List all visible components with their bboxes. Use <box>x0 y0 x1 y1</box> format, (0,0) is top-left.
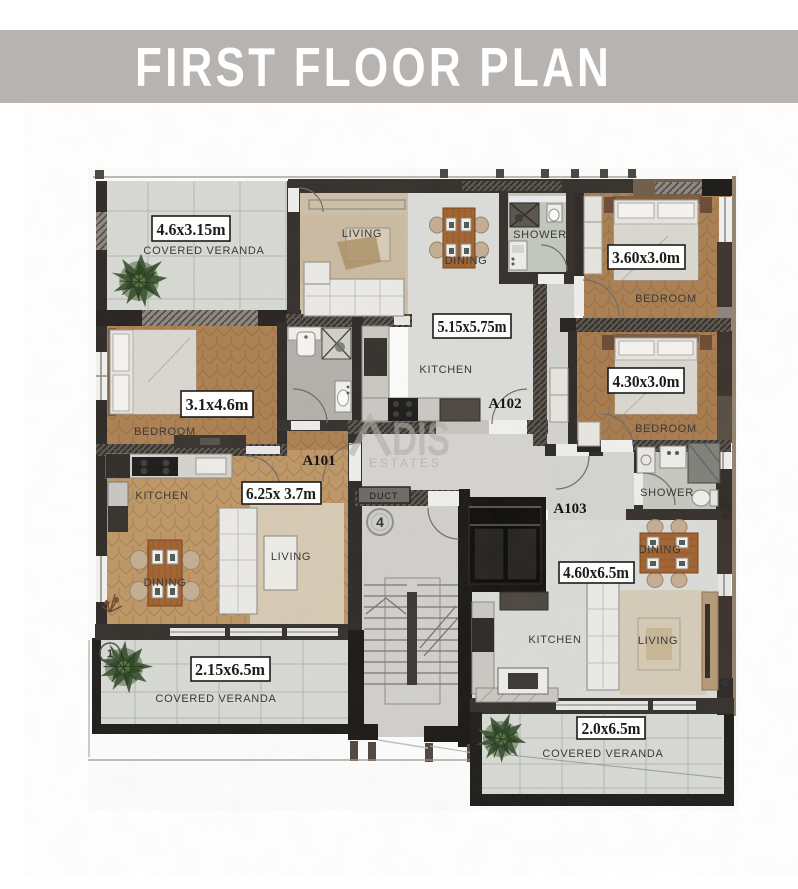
svg-text:2.15x6.5m: 2.15x6.5m <box>195 660 265 679</box>
svg-text:DINING: DINING <box>445 255 488 267</box>
svg-text:COVERED VERANDA: COVERED VERANDA <box>155 693 276 705</box>
svg-text:LIVING: LIVING <box>271 551 311 563</box>
svg-text:TV: TV <box>719 672 731 687</box>
svg-text:DINING: DINING <box>639 544 682 556</box>
svg-text:SHOWER: SHOWER <box>640 487 694 499</box>
svg-text:ESTATES: ESTATES <box>369 456 442 470</box>
svg-text:LIVING: LIVING <box>342 228 382 240</box>
svg-text:BEDROOM: BEDROOM <box>134 426 196 438</box>
svg-text:2.0x6.5m: 2.0x6.5m <box>582 719 641 738</box>
svg-text:DINING: DINING <box>144 577 187 589</box>
svg-text:SHOWER: SHOWER <box>513 229 567 241</box>
svg-text:KITCHEN: KITCHEN <box>135 490 188 502</box>
svg-text:COVERED VERANDA: COVERED VERANDA <box>143 245 264 257</box>
svg-text:A102: A102 <box>488 396 521 412</box>
svg-text:4.30x3.0m: 4.30x3.0m <box>613 372 680 391</box>
svg-text:KITCHEN: KITCHEN <box>419 364 472 376</box>
svg-text:A103: A103 <box>553 501 586 517</box>
svg-text:4.6x3.15m: 4.6x3.15m <box>157 220 226 239</box>
svg-text:COVERED VERANDA: COVERED VERANDA <box>542 748 663 760</box>
svg-text:KITCHEN: KITCHEN <box>528 634 581 646</box>
svg-text:3.1x4.6m: 3.1x4.6m <box>186 395 249 414</box>
svg-text:BEDROOM: BEDROOM <box>635 293 697 305</box>
svg-text:4.60x6.5m: 4.60x6.5m <box>563 563 629 582</box>
svg-text:LIVING: LIVING <box>638 635 678 647</box>
svg-text:FIRST FLOOR PLAN: FIRST FLOOR PLAN <box>135 36 612 98</box>
svg-text:3.60x3.0m: 3.60x3.0m <box>612 248 680 267</box>
svg-text:BEDROOM: BEDROOM <box>635 423 697 435</box>
svg-text:A101: A101 <box>302 453 335 469</box>
svg-text:5.15x5.75m: 5.15x5.75m <box>438 317 507 336</box>
svg-text:6.25x 3.7m: 6.25x 3.7m <box>246 484 316 503</box>
